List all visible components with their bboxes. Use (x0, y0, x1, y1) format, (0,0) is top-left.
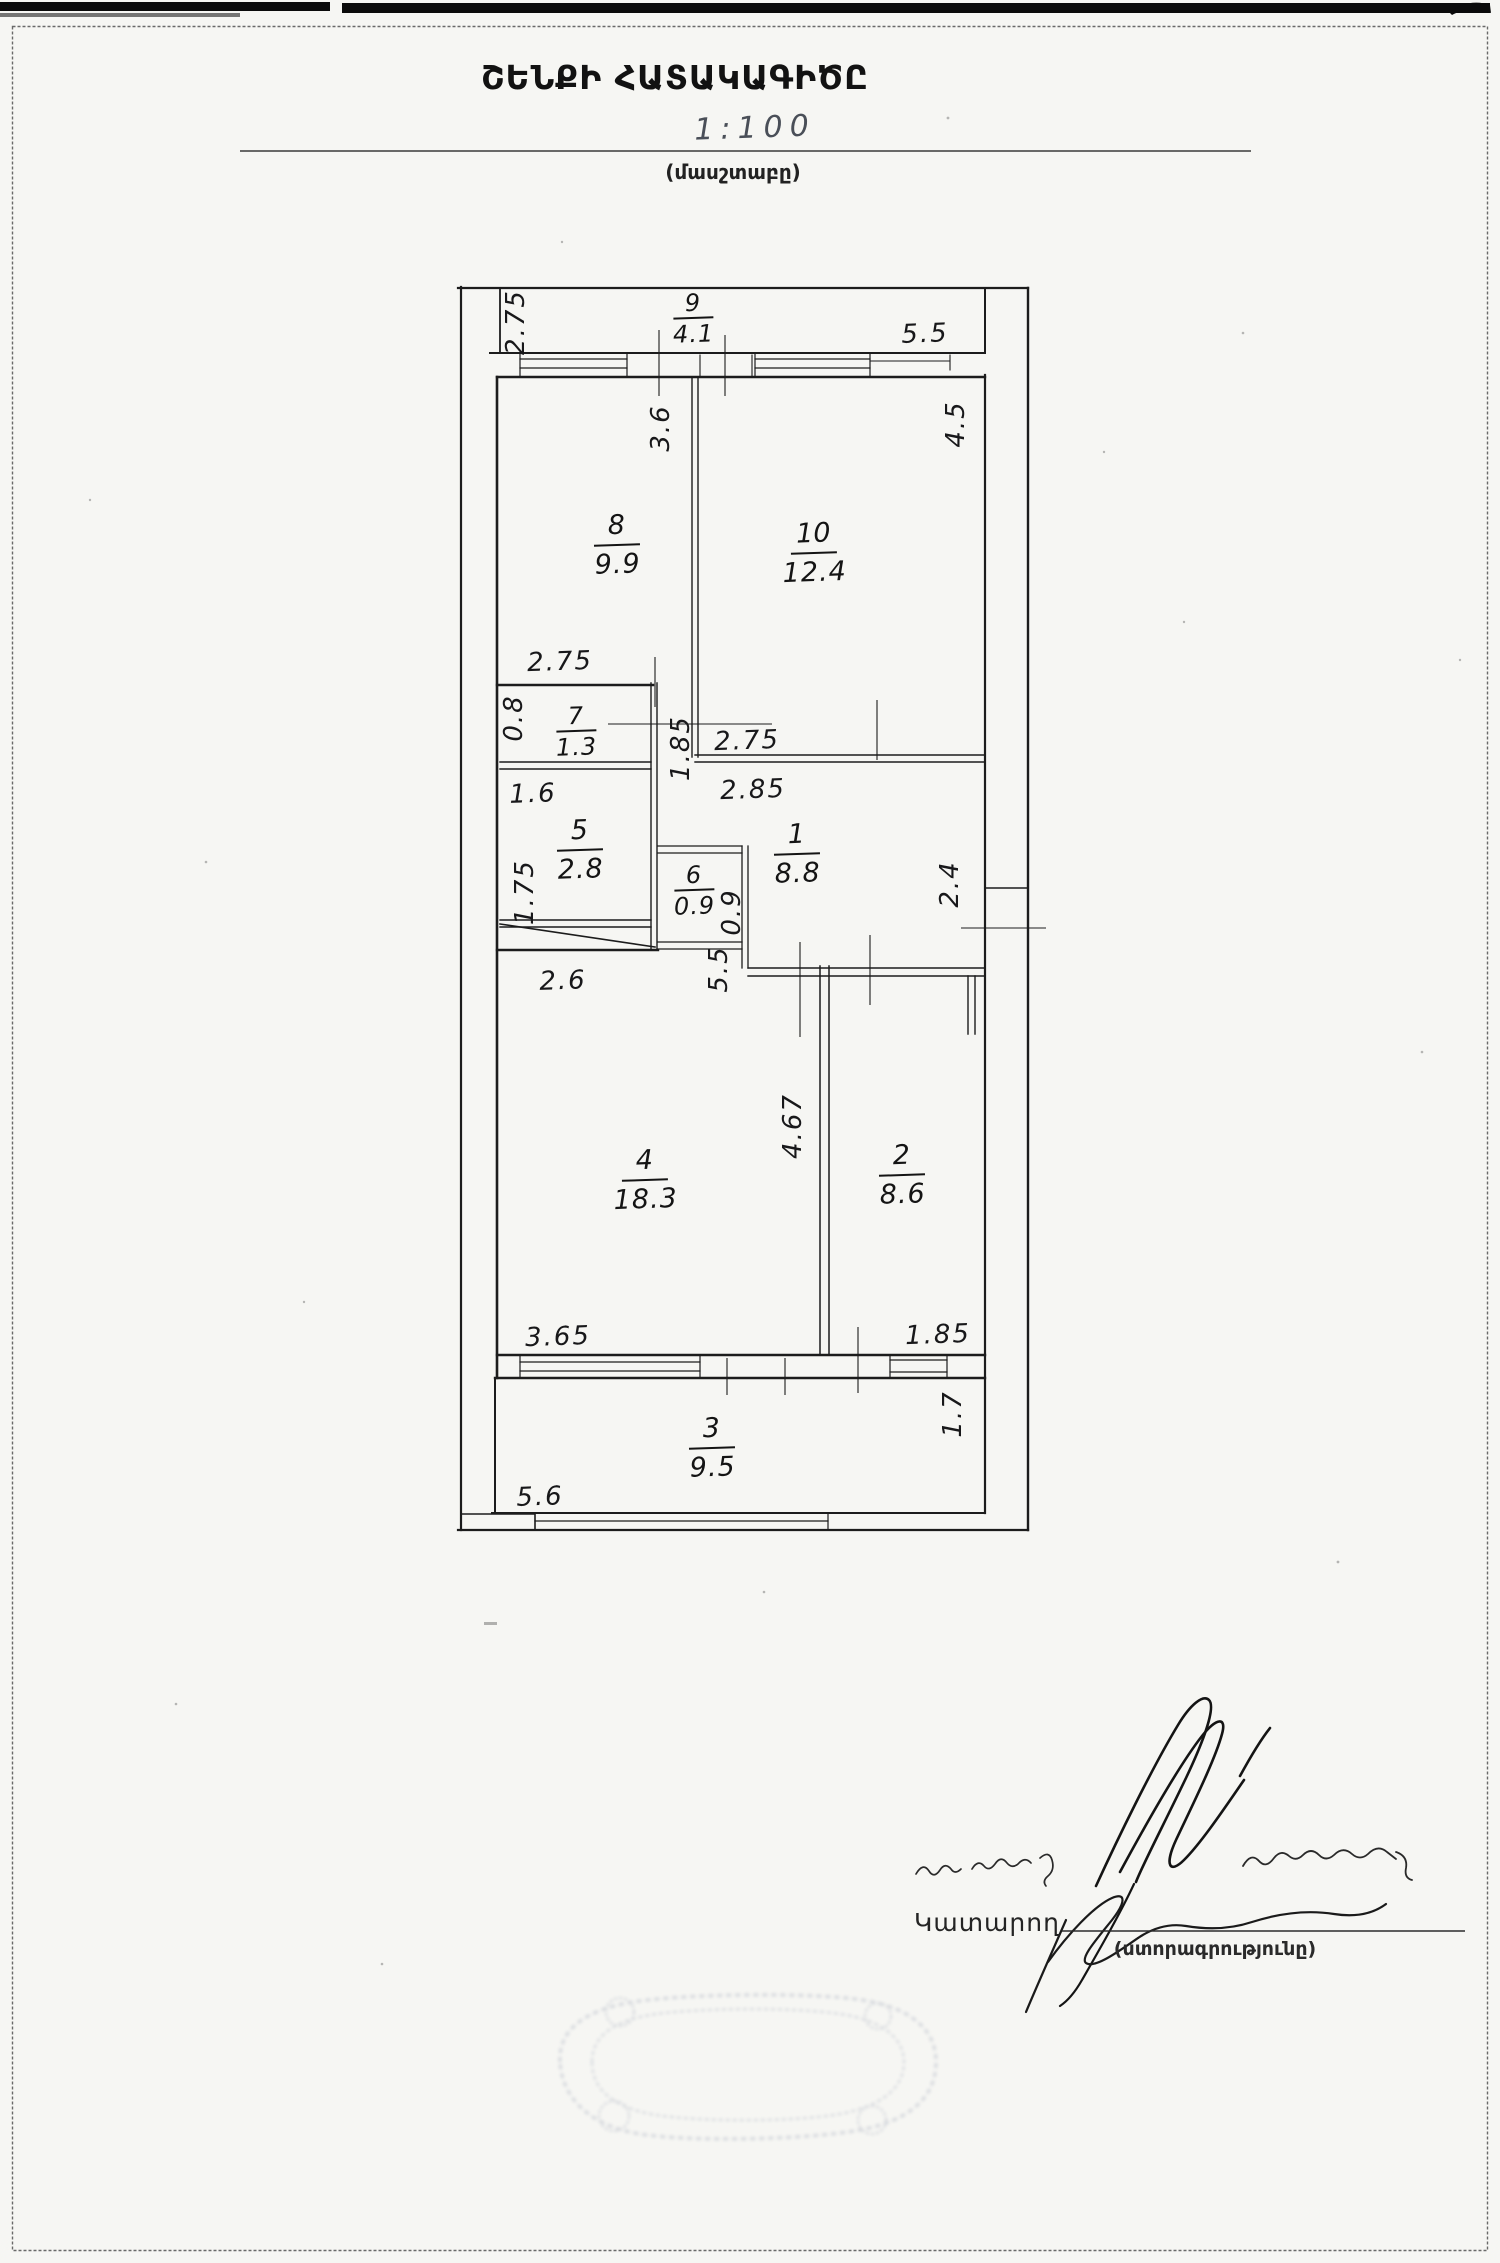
scale-caption: (մասշտաբը) (665, 160, 801, 184)
room-label-2: 2 8.6 (878, 1141, 926, 1210)
room-label-5: 5 2.8 (556, 816, 604, 885)
fraction-bar (622, 1178, 668, 1182)
scanned-floor-plan-page: ՇԵՆՔԻ ՀԱՏԱԿԱԳԻԾԸ 1:100 (մասշտաբը) 9 4.1 … (0, 0, 1500, 2263)
dim-label: 3.65 (525, 1321, 592, 1353)
room-label-10: 10 12.4 (781, 519, 847, 588)
dim-label: 1.85 (905, 1319, 972, 1351)
dim-label: 2.85 (720, 774, 787, 806)
room-label-4: 4 18.3 (612, 1146, 678, 1215)
room-label-8: 8 9.9 (593, 511, 641, 580)
fraction-bar (594, 543, 640, 547)
room-label-1: 1 8.8 (773, 820, 821, 889)
dim-label: 2.6 (539, 965, 587, 997)
room-label-7: 7 1.3 (554, 703, 597, 759)
dim-label-vertical: 0.8 (499, 694, 529, 741)
room-label-6: 6 0.9 (672, 862, 715, 918)
fraction-bar (774, 852, 820, 856)
room-label-9: 9 4.1 (671, 290, 714, 346)
text-layer: ՇԵՆՔԻ ՀԱՏԱԿԱԳԻԾԸ 1:100 (մասշտաբը) 9 4.1 … (0, 0, 1500, 2263)
executor-label: Կատարող (914, 1908, 1060, 1937)
dim-label-vertical: 2.4 (935, 860, 965, 907)
room-label-3: 3 9.5 (688, 1414, 736, 1483)
dim-label-vertical: 1.7 (938, 1390, 968, 1437)
dim-label-vertical: 1.85 (666, 715, 696, 781)
page-title: ՇԵՆՔԻ ՀԱՏԱԿԱԳԻԾԸ (481, 58, 869, 97)
dim-label: 5.5 (901, 318, 949, 350)
dim-label-vertical: 4.67 (778, 1093, 808, 1159)
dim-label-vertical: 3.6 (646, 404, 676, 451)
fraction-bar (879, 1173, 925, 1177)
dim-label-vertical: 4.5 (941, 400, 971, 447)
signature-caption: (ստորագրությունը) (1114, 1938, 1316, 1960)
fraction-bar (791, 551, 837, 555)
dim-label-vertical: 1.75 (510, 859, 540, 925)
scale-value: 1:100 (694, 108, 817, 147)
dim-label-vertical: 2.75 (501, 289, 531, 355)
fraction-bar (689, 1446, 735, 1450)
fraction-bar (557, 848, 603, 852)
dim-label-vertical: 0.9 (717, 888, 747, 935)
dim-label: 5.6 (516, 1481, 564, 1513)
dim-label: 2.75 (527, 646, 594, 678)
dim-label: 1.6 (509, 778, 557, 810)
dim-label: 2.75 (714, 725, 781, 757)
dim-label-vertical: 5.5 (704, 945, 734, 992)
